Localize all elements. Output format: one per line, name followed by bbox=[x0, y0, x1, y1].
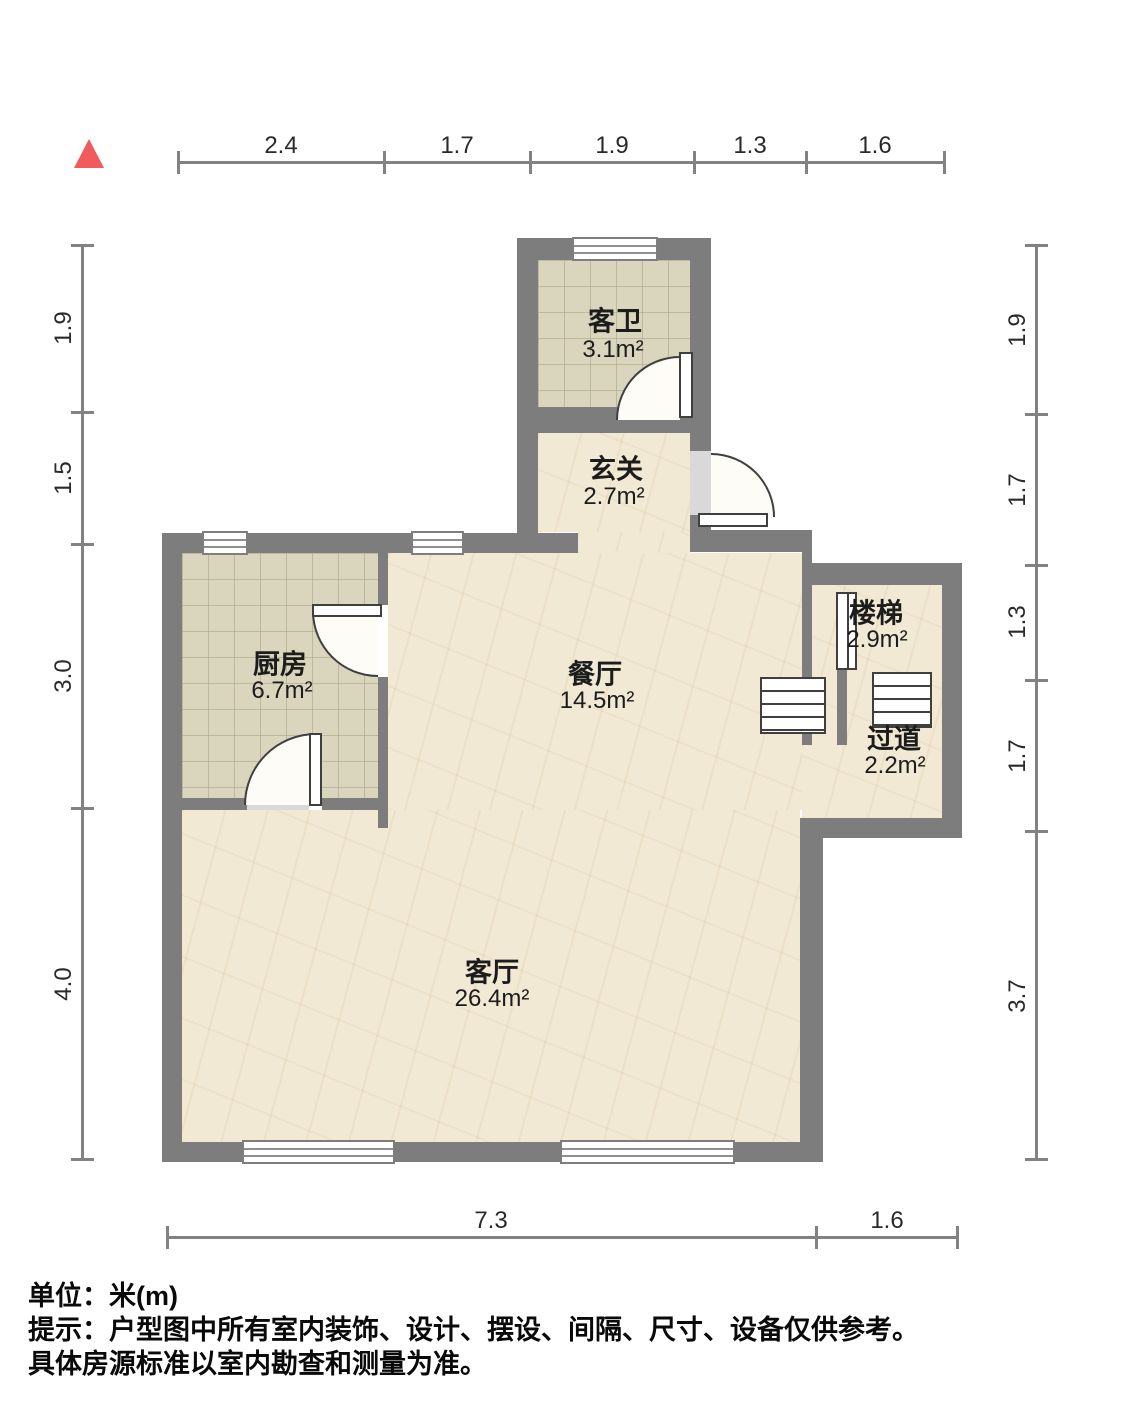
dim-tick bbox=[1025, 1158, 1048, 1161]
wall-kitchen-bottom-left bbox=[182, 798, 247, 810]
room-area-living: 26.4m² bbox=[455, 985, 530, 1013]
dim-line-bottom bbox=[167, 1236, 958, 1239]
dim-tick bbox=[805, 151, 808, 174]
dim-label-right-0: 1.9 bbox=[1004, 313, 1032, 346]
wall-left-exterior bbox=[162, 533, 182, 1162]
floorplan-canvas: 客卫 3.1m² 玄关 2.7m² 厨房 6.7m² 餐厅 14.5m² 楼梯 … bbox=[0, 0, 1125, 1401]
entry-door-leaf bbox=[698, 513, 768, 527]
dim-tick bbox=[1025, 413, 1048, 416]
dim-tick bbox=[71, 244, 94, 247]
wall-right-exterior bbox=[942, 563, 962, 838]
dim-label-left-0: 1.9 bbox=[50, 311, 78, 344]
wall-stair-stub bbox=[837, 670, 847, 745]
note-tip-line2: 具体房源标准以室内勘查和测量为准。 bbox=[28, 1342, 487, 1381]
dim-tick bbox=[815, 1226, 818, 1249]
wall-kitchen-right-lower bbox=[378, 677, 388, 828]
wall-corridor-bottom bbox=[800, 818, 962, 838]
entry-door-swing bbox=[711, 453, 775, 517]
dim-tick bbox=[383, 151, 386, 174]
room-label-bathroom: 客卫 bbox=[588, 300, 642, 339]
dim-tick bbox=[1025, 564, 1048, 567]
wall-stairs-top bbox=[812, 563, 962, 585]
dim-tick bbox=[956, 1226, 959, 1249]
room-label-stairs: 楼梯 bbox=[849, 592, 903, 631]
room-area-corridor: 2.2m² bbox=[864, 752, 925, 780]
room-area-kitchen: 6.7m² bbox=[251, 677, 312, 705]
dim-label-bottom-1: 1.6 bbox=[870, 1207, 903, 1235]
kitchen-bottom-door-leaf bbox=[309, 733, 322, 806]
dim-tick bbox=[1025, 830, 1048, 833]
dim-label-top-4: 1.6 bbox=[858, 132, 891, 160]
wall-kitchen-bottom-right bbox=[322, 798, 378, 810]
dim-tick bbox=[693, 151, 696, 174]
dim-label-bottom-0: 7.3 bbox=[474, 1207, 507, 1235]
kitchen-right-door-leaf bbox=[312, 604, 382, 617]
stair-steps-left bbox=[760, 677, 826, 734]
entry-door-threshold bbox=[690, 451, 711, 515]
wall-kitchen-right-upper bbox=[378, 553, 388, 605]
room-label-foyer: 玄关 bbox=[589, 448, 643, 487]
dim-tick bbox=[1025, 679, 1048, 682]
dim-label-right-4: 3.7 bbox=[1004, 979, 1032, 1012]
dim-label-left-3: 4.0 bbox=[50, 967, 78, 1000]
dim-tick bbox=[177, 151, 180, 174]
dim-tick bbox=[71, 411, 94, 414]
dim-tick bbox=[71, 1158, 94, 1161]
wall-foyer-bottom-right bbox=[690, 530, 812, 552]
window-living-left bbox=[242, 1140, 395, 1164]
window-kitchen bbox=[202, 531, 248, 555]
dim-line-left bbox=[81, 245, 84, 1160]
room-label-corridor: 过道 bbox=[867, 718, 921, 757]
room-label-kitchen: 厨房 bbox=[253, 643, 307, 682]
dim-label-top-0: 2.4 bbox=[264, 132, 297, 160]
dim-line-top bbox=[178, 161, 944, 164]
window-bathroom bbox=[572, 237, 658, 261]
dim-tick bbox=[71, 543, 94, 546]
room-label-dining: 餐厅 bbox=[568, 653, 622, 692]
dim-label-top-2: 1.9 bbox=[595, 132, 628, 160]
room-area-foyer: 2.7m² bbox=[583, 483, 644, 511]
dim-label-top-1: 1.7 bbox=[440, 132, 473, 160]
dim-label-right-2: 1.3 bbox=[1004, 605, 1032, 638]
room-area-stairs: 2.9m² bbox=[846, 626, 907, 654]
dim-label-left-1: 1.5 bbox=[50, 461, 78, 494]
bathroom-door-leaf bbox=[679, 352, 693, 418]
window-dining bbox=[411, 531, 464, 555]
dim-label-top-3: 1.3 bbox=[733, 132, 766, 160]
dim-tick bbox=[166, 1226, 169, 1249]
window-living-right bbox=[560, 1140, 735, 1164]
dim-label-right-3: 1.7 bbox=[1004, 739, 1032, 772]
room-area-dining: 14.5m² bbox=[560, 687, 635, 715]
dim-label-right-1: 1.7 bbox=[1004, 473, 1032, 506]
wall-bathroom-left bbox=[517, 238, 538, 552]
dim-line-right bbox=[1035, 245, 1038, 1160]
dim-tick bbox=[1025, 244, 1048, 247]
dim-tick bbox=[529, 151, 532, 174]
dim-tick bbox=[943, 151, 946, 174]
room-area-bathroom: 3.1m² bbox=[582, 336, 643, 364]
dim-label-left-2: 3.0 bbox=[50, 659, 78, 692]
north-indicator-icon bbox=[74, 139, 104, 168]
foyer-opening-floor bbox=[578, 532, 690, 553]
dim-tick bbox=[71, 807, 94, 810]
room-label-living: 客厅 bbox=[465, 951, 519, 990]
wall-living-right bbox=[800, 818, 823, 1162]
